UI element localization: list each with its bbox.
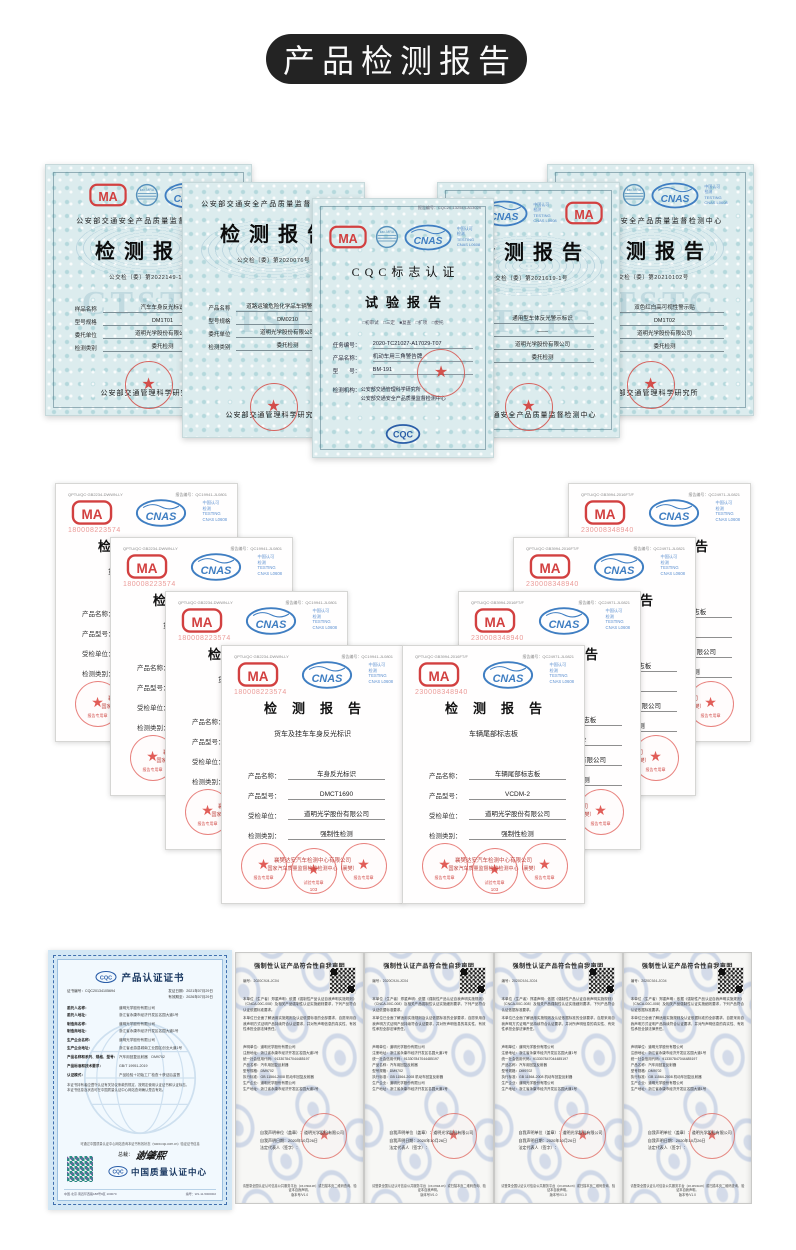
declaration-number: 编号：2020C9J4-JC04 (502, 979, 538, 984)
logo-row: 中国认可 检测 TESTING CNAS L0608 (326, 223, 480, 251)
president-label: 总裁： (118, 1151, 133, 1158)
report-number: 报告编号：QC19941-JL0801 (341, 654, 393, 660)
cma-logo-icon (526, 553, 574, 580)
report-code: QPTU/QC·GB3994-2016FT/F (581, 492, 634, 497)
field-list: 产品名称：车身反光标识 产品型号：DMCT1690 受检单位：道明光学股份有限公… (248, 770, 385, 850)
stamp-org-line: 襄樊达安汽车检测中心有限公司 (414, 856, 574, 864)
product-report-page: 产品检测报告 公安部交通安全产品质量监督检测中心 检测报告 公交检〔委〕第202… (0, 0, 796, 1250)
cqc-mark-title: CQC标志认证 (347, 263, 460, 280)
field-label: 样品名称 (75, 305, 103, 313)
certificate-title: 产品认证证书 (121, 970, 184, 984)
signature-block: 自我声明单位（盖章）：道明光学股份有限公司 自我声明日期：2020年10月26日… (260, 1129, 356, 1152)
field-label: 检测类别 (208, 343, 236, 351)
field-label: 产品型号： (429, 790, 469, 800)
self-declaration-document: 强制性认证产品符合性自我声明 编号：2020C9J4-JC04 本单位（生产者）… (623, 952, 752, 1204)
report-number: 报告编号：QC24971-JL0821 (688, 492, 740, 498)
document-number: 公交检〔委〕第2022149-1号 (109, 273, 188, 281)
field-label: 委托单位 (75, 331, 103, 339)
document-number: 公交检〔委〕第2020076号 (237, 256, 310, 264)
report-code: QPTU/QC·GB2234-DWWN-LY (123, 546, 178, 551)
field-label: 任务编号： (333, 341, 373, 349)
footer-number: 编号：W1-11-5000002 (186, 1192, 216, 1196)
cnas-accreditation-text: 中国认可 检测 TESTING CNAS L0608 (550, 663, 574, 684)
qr-code (718, 968, 743, 993)
ilac-mra-logo-icon (375, 225, 399, 249)
cnas-accreditation-text: 中国认可 检测 TESTING CNAS L0608 (369, 663, 393, 684)
seal-caption: 报告专用章 (579, 821, 623, 827)
test-report-certificate: QPTU/QC·GB3994-2016FT/F 报告编号：QC24971-JL0… (402, 645, 585, 904)
field-label: 委托单位 (208, 330, 236, 338)
declaration-info-lines: 声明单位：道明光学股份有限公司 注册地址：浙江省永康市经济开发区名园大道1号 统… (243, 1045, 329, 1093)
declaration-info-lines: 声明单位：道明光学股份有限公司 注册地址：浙江省永康市经济开发区名园大道1号 统… (631, 1045, 717, 1093)
cnas-accreditation-text: 中国认可 检测 TESTING CNAS L0608 (716, 501, 740, 522)
stamp-org-line: 国家汽车质量监督检验检测中心（襄樊） (233, 865, 393, 872)
report-code: QPTU/QC·GB3994-2016FT/F (526, 546, 579, 551)
seal-caption: 报告专用章 (242, 875, 286, 881)
seal-caption: 报告专用章 (523, 875, 567, 881)
red-star-seal-icon: ★ (417, 349, 465, 397)
report-code: QPTU/QC·GB3994-2016FT/F (471, 600, 524, 605)
cnas-accreditation-text: 中国认可 检测 TESTING CNAS L0608 (704, 185, 727, 206)
president-signature: 谢肇熙 (134, 1147, 167, 1162)
report-number: 报告编号：QC24971-JL0821 (578, 600, 630, 606)
certificate-number: 证书编号：CQC20134105694 (67, 989, 115, 1000)
report-title: 检测报告 (403, 698, 584, 717)
cnas-logo-icon (404, 224, 452, 251)
qr-code (589, 968, 614, 993)
report-code: QPTU/QC·GB2234-DWWN-LY (234, 654, 289, 659)
field-label: 受检单位： (429, 810, 469, 820)
test-report-title: 试验报告 (357, 292, 449, 311)
field-label: 受检单位： (248, 810, 288, 820)
document-number: 公交检〔委〕第2021619-1号 (489, 274, 568, 282)
cnas-accreditation-text: 中国认可 检测 TESTING CNAS L0608 (457, 227, 480, 248)
star-icon: ★ (643, 374, 657, 394)
cma-logo-icon (68, 499, 116, 526)
report-code: QPTU/QC·GB3994-2016FT/F (415, 654, 468, 659)
field-value: 通用型车体反光警示标识 (491, 314, 593, 324)
page-title-text: 产品检测报告 (276, 36, 517, 82)
qr-code (330, 968, 355, 993)
cma-logo-icon (562, 200, 606, 226)
red-star-seal-icon: ★ (250, 383, 298, 431)
cnas-accreditation-text: 中国认可 检测 TESTING CNAS L0608 (258, 555, 282, 576)
self-declaration-document: 强制性认证产品符合性自我声明 编号：2020C9J4-JC04 本单位（生产者）… (235, 952, 364, 1204)
declaration-footer: 请登录全国认证认可信息公共服务平台（cx.cnca.cn）或扫描本页二维码查询、… (501, 1184, 616, 1198)
cnas-logo-icon (135, 499, 187, 527)
cma-certificate-number: 180008223574 (178, 635, 231, 642)
verification-line: 可通过中国质量认证中心网站查询本证书有效状态（www.cqc.com.cn）验证… (58, 1141, 222, 1146)
cnas-accreditation-text: 中国认可 检测 TESTING CNAS L0608 (661, 555, 685, 576)
certificate-number-row: 证书编号：CQC20134105694 发证日期：2021年07月29日 有效期… (67, 989, 213, 1000)
cnas-accreditation-text: 中国认可 检测 TESTING CNAS L0608 (203, 501, 227, 522)
red-star-seal-icon: ★ (505, 383, 553, 431)
issue-date: 发证日期：2021年07月29日 (168, 989, 213, 994)
red-star-seal-icon: ★ (125, 361, 173, 409)
star-icon: ★ (141, 374, 155, 394)
ilac-mra-logo-icon (135, 183, 159, 207)
self-declaration-document: 强制性认证产品符合性自我声明 编号：2020C9J4-JC04 本单位（生产者）… (364, 952, 493, 1204)
cnas-logo-icon (538, 607, 590, 635)
declaration-paragraphs: 本单位（生产者）郑重声明：依据《强制性产品认证自我声明实施规则》（CNCA-00… (372, 997, 485, 1036)
cma-logo-icon (326, 224, 370, 250)
field-value: 道明光学股份有限公司 (605, 329, 725, 339)
cnas-logo-icon (651, 182, 699, 209)
issuing-organization: 中国质量认证中心 (108, 1165, 207, 1178)
report-number: 报告编号：QC19941-JL0801 (285, 600, 337, 606)
field-value: DMCT1690 (288, 791, 385, 800)
cma-logo-icon (178, 607, 226, 634)
stamp-cluster: ★ 报告专用章 ★ 试验专用章 103 ★ 报告专用章 襄樊达安汽车检测中心有限… (414, 839, 574, 897)
seal-number: 103 (473, 887, 517, 892)
qr-code (67, 1156, 93, 1182)
stamp-cluster: ★ 报告专用章 ★ 试验专用章 103 ★ 报告专用章 襄樊达安汽车检测中心有限… (233, 839, 393, 897)
report-type-checkboxes: □初审试 □三定 ■复查 □扩项 □委托 (362, 320, 443, 326)
cma-certificate-number: 180008223574 (68, 527, 121, 534)
declaration-info-lines: 声明单位：道明光学股份有限公司 注册地址：浙江省永康市经济开发区名园大道1号 统… (502, 1045, 588, 1093)
seal-caption: 报告专用章 (342, 875, 386, 881)
seal-caption: 试验专用章 (292, 880, 336, 886)
cnas-logo-icon (593, 553, 645, 581)
cnas-logo-icon (301, 661, 353, 689)
field-value: 双色红白高可视性警示贴 (605, 303, 725, 313)
field-label: 检测类别 (75, 344, 103, 352)
organization-name: 中国质量认证中心 (131, 1166, 207, 1178)
qr-code (460, 968, 485, 993)
footer-address: 中国·北京·南四环西路188号9区 100070 (64, 1192, 117, 1196)
report-title: 检测报告 (222, 698, 403, 717)
star-icon: ★ (521, 396, 535, 416)
cma-certificate-number: 230008348940 (581, 527, 634, 534)
cqc-logo-icon (95, 970, 117, 984)
field-label: 产品名称： (429, 770, 469, 780)
field-label: 型号规格 (208, 317, 236, 325)
cnas-accreditation-text: 中国认可 检测 TESTING CNAS L0608 (313, 609, 337, 630)
cma-certificate-number: 230008348940 (415, 689, 468, 696)
declaration-paragraphs: 本单位（生产者）郑重声明：依据《强制性产品认证自我声明实施规则》（CNCA-00… (243, 997, 356, 1036)
field-value: 道明光学股份有限公司 (288, 808, 385, 820)
cnas-logo-icon (482, 661, 534, 689)
red-star-seal-icon: ★ (627, 361, 675, 409)
report-number: 报告编号：QC19941-JL0801 (230, 546, 282, 552)
field-value: 车辆尾部标志板 (469, 768, 566, 780)
field-value: 道明光学股份有限公司 (491, 340, 593, 350)
signature-block: 自我声明单位（盖章）：道明光学股份有限公司 自我声明日期：2020年10月26日… (519, 1129, 615, 1152)
report-code: QPTU/QC·GB2234-DWWN-LY (68, 492, 123, 497)
cnas-logo-icon (245, 607, 297, 635)
cqc-mark-test-report: 报告编号：CQC20-132544-A13029 中国认可 检测 TESTING… (312, 198, 494, 458)
field-list: 产品名称：车辆尾部标志板 产品型号：VCDM-2 受检单位：道明光学股份有限公司… (429, 770, 566, 850)
cma-certificate-number: 230008348940 (526, 581, 579, 588)
cma-certificate-number: 230008348940 (471, 635, 524, 642)
declaration-info-lines: 声明单位：道明光学股份有限公司 注册地址：浙江省永康市经济开发区名园大道1号 统… (372, 1045, 458, 1093)
cma-logo-icon (234, 661, 282, 688)
field-label: 产品型号： (248, 790, 288, 800)
declaration-number: 编号：2020C9J4-JC04 (631, 979, 667, 984)
report-number: 报告编号：QC19941-JL0801 (175, 492, 227, 498)
cma-logo-icon (123, 553, 171, 580)
report-number: 报告编号：QC24971-JL0821 (633, 546, 685, 552)
cma-certificate-number: 180008223574 (123, 581, 176, 588)
declaration-paragraphs: 本单位（生产者）郑重声明：依据《强制性产品认证自我声明实施规则》（CNCA-00… (631, 997, 744, 1036)
report-number: 报告编号：CQC20-132544-A13029 (418, 205, 481, 211)
seal-caption: 试验专用章 (473, 880, 517, 886)
self-declaration-row: 强制性认证产品符合性自我声明 编号：2020C9J4-JC04 本单位（生产者）… (235, 952, 752, 1204)
field-value: 2020-TC21027-A17029-T07 (373, 341, 473, 349)
agency-line: 公安部交通安全产品质量监督检测中心 (361, 395, 446, 402)
declaration-footer: 请登录全国认证认可信息公共服务平台（cx.cnca.cn）或扫描本页二维码查询、… (242, 1184, 357, 1198)
cnas-accreditation-text: 中国认可 检测 TESTING CNAS L0608 (533, 203, 556, 224)
field-label: 型号规格 (75, 318, 103, 326)
cma-logo-icon (86, 182, 130, 208)
declaration-number: 编号：2020C9J4-JC04 (243, 979, 279, 984)
field-label: 产品名称 (208, 304, 236, 312)
agency-label: 检测机构： (333, 386, 361, 402)
cnas-logo-icon (190, 553, 242, 581)
report-number: 报告编号：QC24971-JL0821 (522, 654, 574, 660)
field-value: —— (491, 329, 593, 337)
page-title: 产品检测报告 (266, 34, 527, 84)
cnas-logo-icon (648, 499, 700, 527)
president-signature-row: 总裁： 谢肇熙 (118, 1147, 166, 1162)
field-value: 道明光学股份有限公司 (469, 808, 566, 820)
cma-logo-icon (415, 661, 463, 688)
field-label: 产品名称： (248, 770, 288, 780)
declaration-number: 编号：2020C9J4-JC04 (372, 979, 408, 984)
seal-caption: 报告专用章 (423, 875, 467, 881)
certificate-footer: 中国·北京·南四环西路188号9区 100070 编号：W1-11-500000… (64, 1189, 216, 1196)
certificate-inner-page: 产品认证证书 证书编号：CQC20134105694 发证日期：2021年07月… (57, 959, 223, 1201)
declaration-paragraphs: 本单位（生产者）郑重声明：依据《强制性产品认证自我声明实施规则》（CNCA-00… (502, 997, 615, 1036)
signature-block: 自我声明单位（盖章）：道明光学股份有限公司 自我声明日期：2020年10月26日… (389, 1129, 485, 1152)
field-label: 产品名称： (333, 354, 373, 362)
valid-until-date: 有效期至：2026年07月29日 (168, 995, 213, 1000)
certificate-field-rows: 委托人名称：道明光学股份有限公司 委托人地址：浙江省永康市经济开发区名园大道1号… (67, 1006, 213, 1078)
cqc-logo-icon (385, 423, 421, 445)
cma-logo-icon (581, 499, 629, 526)
seal-number: 103 (292, 887, 336, 892)
test-report-certificate: QPTU/QC·GB2234-DWWN-LY 报告编号：QC19941-JL08… (221, 645, 404, 904)
field-value: VCDM-2 (469, 791, 566, 800)
report-subtitle: 货车及挂车车身反光标识 (222, 729, 403, 739)
ilac-mra-logo-icon (622, 183, 646, 207)
field-value: 委托检测 (605, 342, 725, 352)
cqc-product-certificate: 产品认证证书 证书编号：CQC20134105694 发证日期：2021年07月… (48, 950, 232, 1210)
signature-block: 自我声明单位（盖章）：道明光学股份有限公司 自我声明日期：2020年10月26日… (648, 1129, 744, 1152)
certificate-header: 产品认证证书 (58, 970, 222, 984)
field-label: 型 号： (333, 367, 373, 375)
cqc-logo-icon (108, 1165, 128, 1178)
star-icon: ★ (434, 362, 448, 382)
cma-logo-icon (471, 607, 519, 634)
certificate-notes: 本证书持有者应遵守认证有关协议条款的规定，按规定使用认证证书和认证标志。 本证书… (67, 1083, 213, 1093)
report-subtitle: 车辆尾部标志板 (403, 729, 584, 739)
field-value: 车身反光标识 (288, 768, 385, 780)
cnas-accreditation-text: 中国认可 检测 TESTING CNAS L0608 (606, 609, 630, 630)
declaration-footer: 请登录全国认证认可信息公共服务平台（cx.cnca.cn）或扫描本页二维码查询、… (630, 1184, 745, 1198)
document-number: 公交检〔委〕第20210102号 (612, 273, 688, 281)
field-value: 委托检测 (491, 353, 593, 363)
star-icon: ★ (266, 396, 280, 416)
stamp-org-line: 襄樊达安汽车检测中心有限公司 (233, 856, 393, 864)
declaration-footer: 请登录全国认证认可信息公共服务平台（cx.cnca.cn）或扫描本页二维码查询、… (371, 1184, 486, 1198)
self-declaration-document: 强制性认证产品符合性自我声明 编号：2020C9J4-JC04 本单位（生产者）… (494, 952, 623, 1204)
report-code: QPTU/QC·GB2234-DWWN-LY (178, 600, 233, 605)
stamp-org-line: 国家汽车质量监督检验检测中心（襄樊） (414, 865, 574, 872)
field-value: DM1T02 (605, 318, 725, 326)
cma-certificate-number: 180008223574 (234, 689, 287, 696)
